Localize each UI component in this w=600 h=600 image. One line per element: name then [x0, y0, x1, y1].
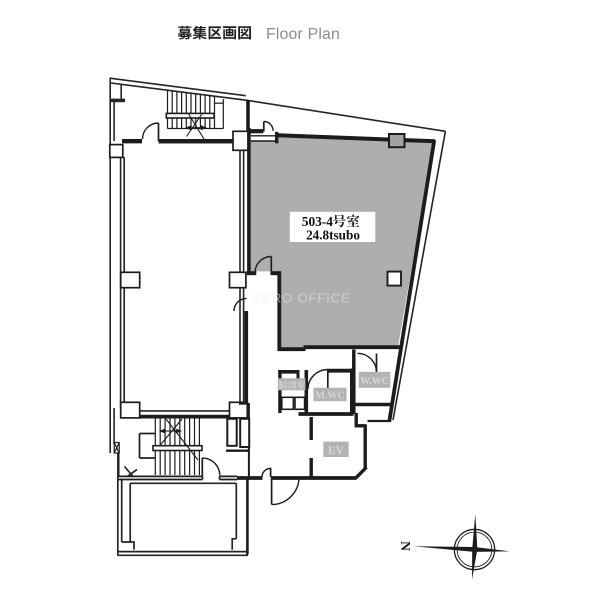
- svg-text:N: N: [398, 541, 413, 551]
- svg-text:ZERO OFFICE: ZERO OFFICE: [254, 291, 351, 306]
- svg-text:W.WC: W.WC: [360, 376, 389, 387]
- svg-text:EV: EV: [328, 445, 345, 457]
- svg-text:M.WC: M.WC: [315, 390, 344, 401]
- svg-text:Floor Plan: Floor Plan: [266, 26, 340, 43]
- svg-text:24.8tsubo: 24.8tsubo: [306, 228, 360, 243]
